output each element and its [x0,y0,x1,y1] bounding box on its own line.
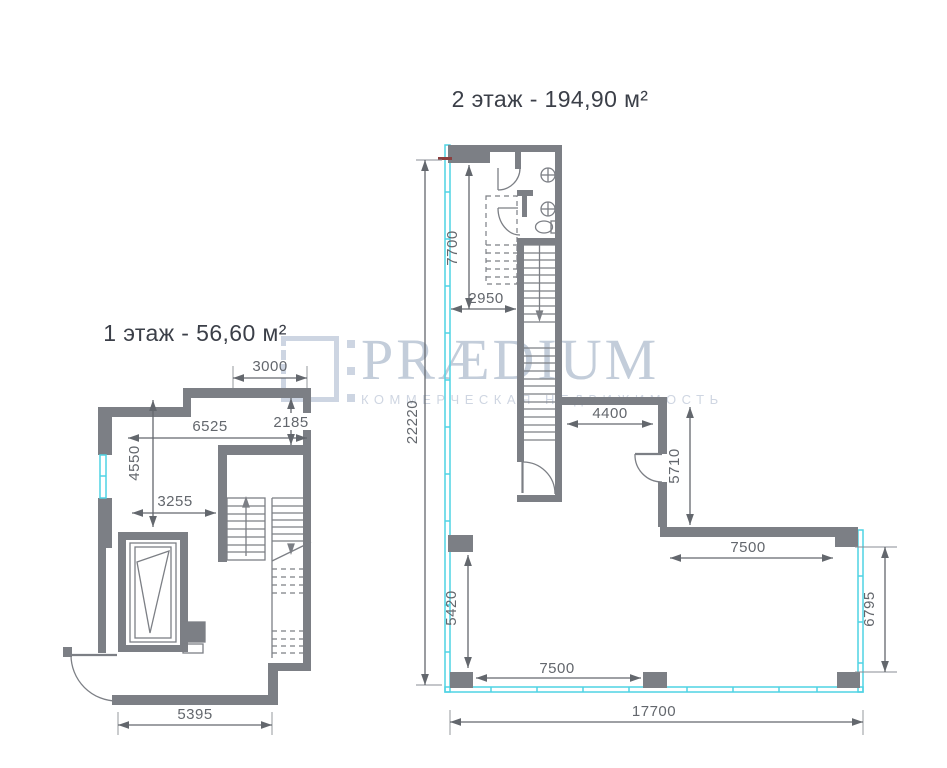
floor1-stairs [227,498,311,658]
floor1-title: 1 этаж - 56,60 м² [85,320,305,347]
dim-7500-room: 7500 [730,539,765,556]
dim-5395: 5395 [177,706,212,723]
floor2-bathroom-fixtures [536,168,557,233]
dim-2185: 2185 [273,414,308,431]
dim-4550: 4550 [126,445,143,480]
dim-7700: 7700 [444,230,461,265]
floor1-plan: 3000 6525 2185 4550 3255 5395 [60,350,320,740]
watermark-colon-icon [347,340,355,402]
floor2-walls [448,145,860,688]
floor1-entry-door [71,655,117,701]
dim-6525: 6525 [192,418,227,435]
dim-5420: 5420 [443,590,460,625]
dim-3000: 3000 [252,358,287,375]
floor2-glazing [445,145,863,692]
dim-4400: 4400 [592,405,627,422]
dim-7500-bottom: 7500 [539,660,574,677]
floorplan-page: 2 этаж - 194,90 м² 1 этаж - 56,60 м² PRÆ… [0,0,947,768]
floor1-elevator [130,543,205,653]
dim-22220: 22220 [404,400,421,444]
floor2-upper-flight-dashed [486,196,517,284]
floor2-title: 2 этаж - 194,90 м² [420,86,680,113]
dim-2950: 2950 [468,290,503,307]
floor2-room-door [635,454,662,482]
floor2-dimensions: 22220 7700 2950 4400 5710 7500 6795 5420… [404,160,897,735]
dim-3255: 3255 [157,493,192,510]
dim-6795: 6795 [861,591,878,626]
dim-5710: 5710 [666,448,683,483]
dim-17700: 17700 [632,703,676,720]
floor2-plan: 22220 7700 2950 4400 5710 7500 6795 5420… [400,135,910,750]
floor2-stair-door [523,462,556,494]
floor1-walls [63,388,311,705]
